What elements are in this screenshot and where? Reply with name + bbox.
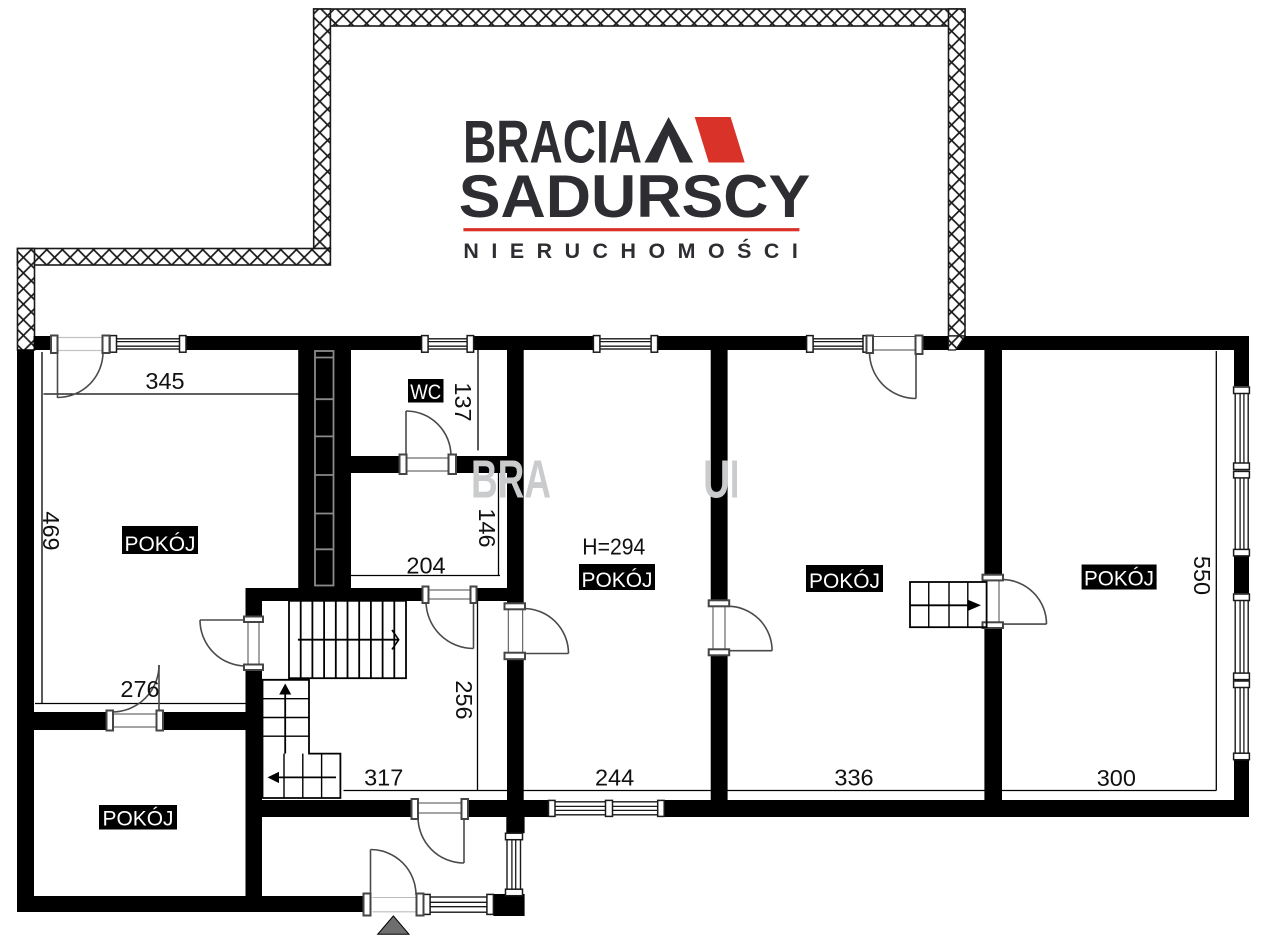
svg-text:H=294: H=294 bbox=[582, 533, 645, 559]
svg-text:336: 336 bbox=[834, 765, 873, 791]
svg-text:137: 137 bbox=[450, 382, 476, 421]
svg-text:550: 550 bbox=[1189, 556, 1215, 595]
svg-text:469: 469 bbox=[38, 511, 64, 550]
svg-text:POKÓJ: POKÓJ bbox=[103, 806, 174, 831]
svg-text:204: 204 bbox=[406, 553, 445, 579]
svg-text:345: 345 bbox=[145, 368, 184, 394]
svg-text:NIERUCHOMOŚCI: NIERUCHOMOŚCI bbox=[463, 238, 797, 263]
svg-text:POKÓJ: POKÓJ bbox=[582, 567, 653, 592]
svg-text:WC: WC bbox=[410, 381, 441, 404]
svg-text:BRA: BRA bbox=[471, 450, 551, 510]
svg-text:317: 317 bbox=[364, 764, 403, 790]
svg-text:146: 146 bbox=[474, 508, 500, 547]
svg-text:POKÓJ: POKÓJ bbox=[125, 531, 196, 556]
svg-text:244: 244 bbox=[595, 765, 634, 791]
svg-text:256: 256 bbox=[451, 680, 477, 719]
svg-text:300: 300 bbox=[1097, 765, 1136, 791]
svg-text:POKÓJ: POKÓJ bbox=[1084, 566, 1154, 591]
svg-text:276: 276 bbox=[120, 676, 159, 702]
svg-text:POKÓJ: POKÓJ bbox=[809, 568, 880, 593]
svg-text:SADURSCY: SADURSCY bbox=[459, 163, 811, 230]
